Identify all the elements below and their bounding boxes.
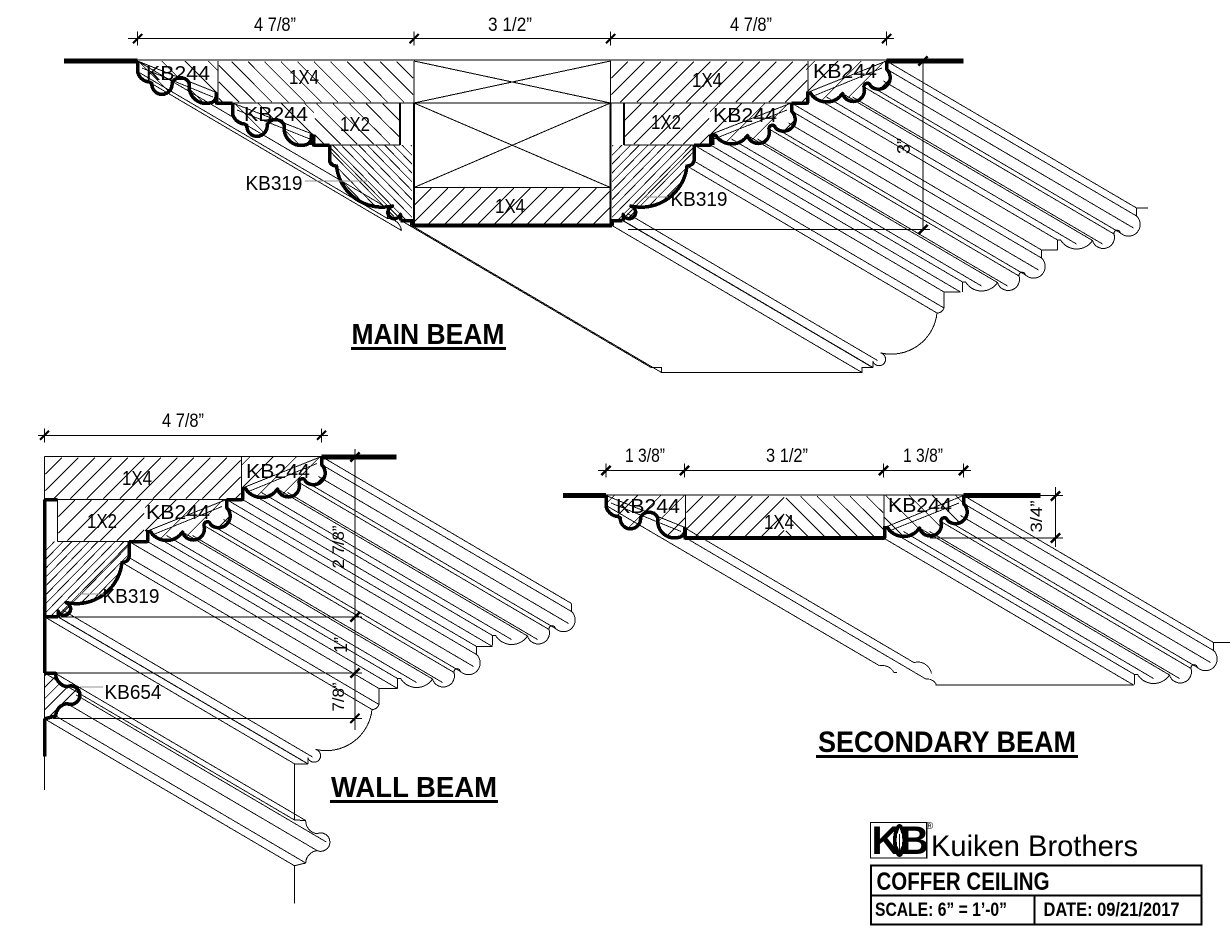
svg-text:1X4: 1X4: [495, 196, 525, 218]
svg-text:4 7/8”: 4 7/8”: [162, 411, 204, 432]
svg-text:KB319: KB319: [103, 586, 160, 608]
svg-text:KB244: KB244: [146, 63, 210, 85]
svg-text:KB244: KB244: [616, 496, 680, 518]
svg-text:KB319: KB319: [246, 173, 303, 195]
svg-text:3”: 3”: [894, 138, 914, 154]
svg-text:4 7/8”: 4 7/8”: [254, 15, 296, 36]
svg-text:1X2: 1X2: [87, 511, 117, 533]
svg-text:KB654: KB654: [105, 682, 162, 704]
svg-text:Kuiken Brothers: Kuiken Brothers: [931, 830, 1138, 863]
svg-text:4 7/8”: 4 7/8”: [730, 15, 772, 36]
svg-text:KB244: KB244: [146, 502, 210, 524]
svg-text:3 1/2”: 3 1/2”: [766, 446, 808, 467]
svg-text:1X4: 1X4: [764, 512, 794, 534]
svg-text:7/8”: 7/8”: [329, 682, 348, 711]
svg-text:KB244: KB244: [888, 495, 952, 517]
svg-text:1 3/8”: 1 3/8”: [903, 446, 943, 467]
svg-text:1X4: 1X4: [289, 67, 319, 89]
svg-text:1X2: 1X2: [651, 112, 681, 134]
svg-text:3 1/2”: 3 1/2”: [488, 15, 532, 36]
svg-text:1”: 1”: [331, 637, 351, 653]
svg-text:KB319: KB319: [671, 189, 728, 211]
svg-text:WALL BEAM: WALL BEAM: [331, 772, 497, 804]
svg-text:KB244: KB244: [244, 104, 308, 126]
svg-text:COFFER CEILING: COFFER CEILING: [877, 868, 1050, 896]
svg-text:3/4”: 3/4”: [1027, 500, 1046, 532]
svg-text:KB244: KB244: [813, 61, 877, 83]
svg-text:1X4: 1X4: [692, 70, 722, 92]
svg-text:MAIN BEAM: MAIN BEAM: [352, 319, 505, 351]
svg-text:1X2: 1X2: [340, 114, 370, 136]
svg-text:DATE: 09/21/2017: DATE: 09/21/2017: [1044, 900, 1180, 921]
svg-text:KB244: KB244: [713, 105, 777, 127]
svg-text:SCALE: 6” = 1’-0”: SCALE: 6” = 1’-0”: [875, 900, 1007, 921]
svg-text:SECONDARY BEAM: SECONDARY BEAM: [818, 726, 1076, 759]
svg-text:2 7/8”: 2 7/8”: [329, 525, 348, 568]
svg-text:KB244: KB244: [246, 461, 310, 483]
svg-text:1 3/8”: 1 3/8”: [625, 446, 665, 467]
svg-text:1X4: 1X4: [122, 468, 152, 490]
